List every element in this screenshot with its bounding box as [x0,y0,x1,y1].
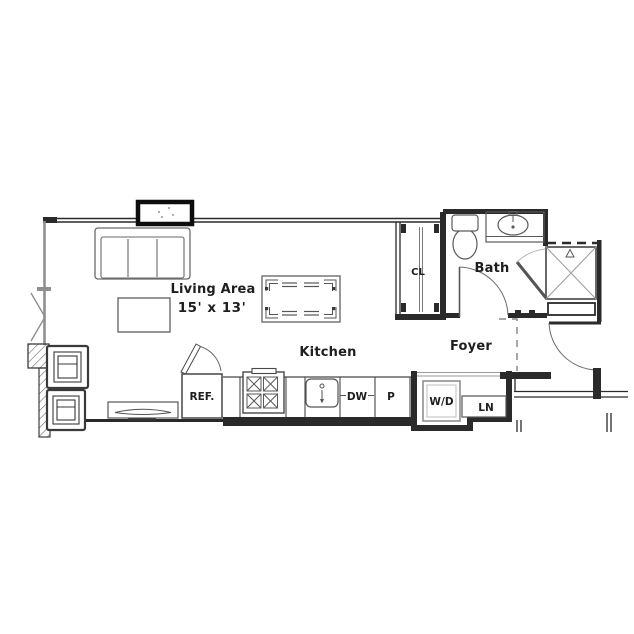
living-room: Living Area 15' x 13' [28,202,444,437]
closet-doors [417,373,500,377]
shower-bench [548,303,595,315]
bath-label: Bath [475,261,510,276]
shower [517,247,596,299]
armchair-2 [47,390,85,430]
closet-right-wall [440,212,446,320]
bathroom: Bath [443,209,602,322]
coffee-table [118,298,170,332]
entry-corner-wall [593,368,601,399]
linen-closet: LN [462,396,506,417]
foyer-dashed-boundary [499,319,517,371]
laundry-closet: W/D LN [411,371,512,431]
closet-bottom-wall [395,314,445,320]
closet-cl: CL [395,212,446,320]
right-exterior-wall [597,240,602,322]
refrigerator-door [181,344,201,374]
toilet [452,215,478,259]
window-wall [31,221,51,345]
washer-dryer: W/D [423,381,460,421]
tv-console [108,402,178,421]
ptac-unit [138,202,192,224]
kitchen-label: Kitchen [299,345,356,360]
foyer: Foyer [411,319,628,432]
refrigerator-door-swing [201,347,222,372]
refrigerator: REF. [181,344,222,418]
entry-door [549,323,601,370]
foyer-label: Foyer [450,339,492,354]
floor-plan-page: Living Area 15' x 13' Kitchen [0,0,634,634]
floor-plan-drawing: Living Area 15' x 13' Kitchen [0,0,634,634]
sofa [95,228,190,279]
kitchen: Kitchen REF. [181,344,414,426]
dishwasher-label: DW [347,391,368,403]
hallway-wall [514,392,628,433]
shower-door-swing [517,249,545,262]
linen-label: LN [478,402,493,414]
stove [243,369,284,414]
living-area-dimensions: 15' x 13' [178,300,246,316]
dining-table [262,276,340,322]
pantry-label: P [387,391,395,403]
entry-door-swing [549,323,596,370]
kitchen-rear-wall [223,417,414,426]
bath-vanity [486,212,544,243]
refrigerator-label: REF. [190,391,215,403]
armchair-1 [47,346,88,388]
washer-dryer-label: W/D [429,396,453,408]
shower-door [517,262,546,298]
closet-label: CL [411,267,425,278]
window-break-symbol [31,293,45,341]
living-area-label: Living Area [170,282,255,297]
window-mullion [37,287,51,291]
dishwasher: DW [340,391,374,403]
bath-bottom-wall [443,310,547,318]
top-wall [45,219,444,223]
kitchen-sink [306,379,338,407]
